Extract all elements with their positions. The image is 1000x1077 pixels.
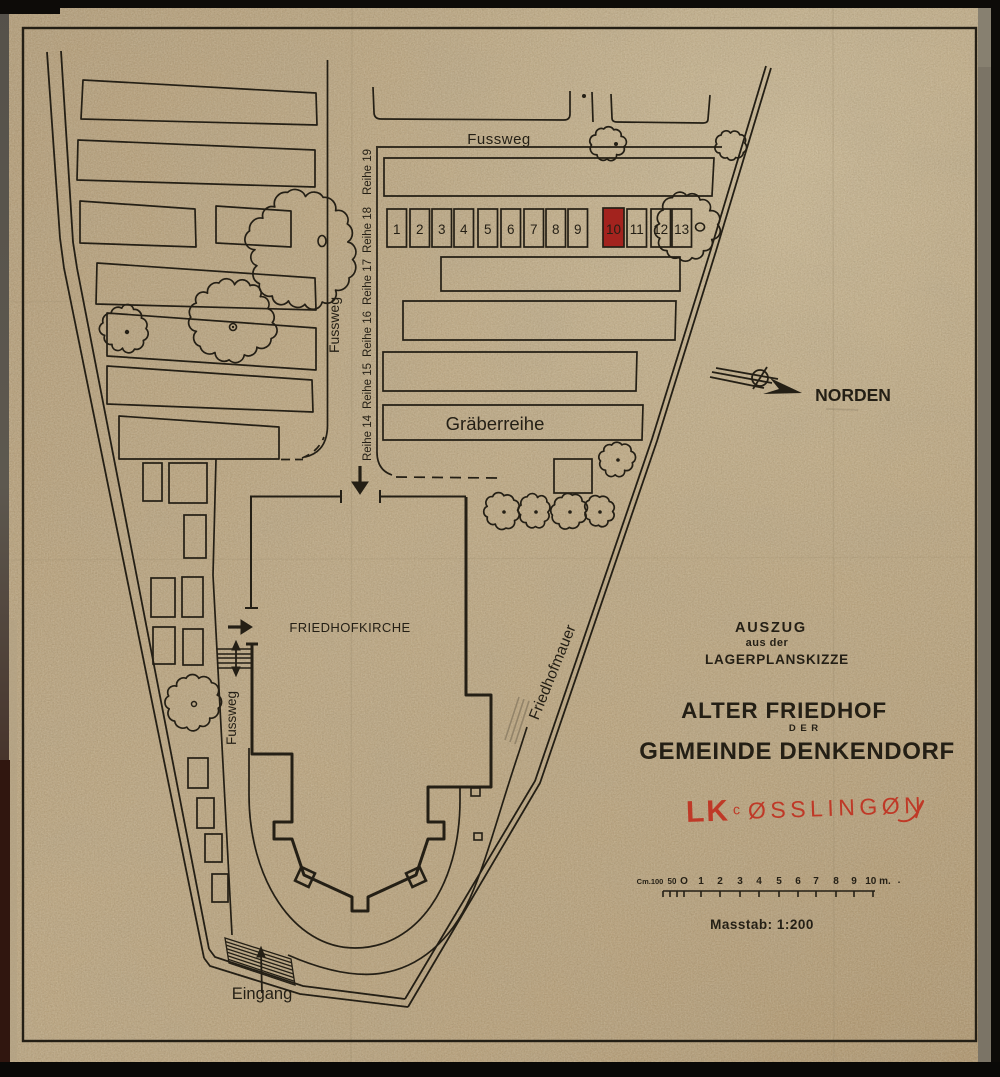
svg-text:D E R: D E R [789,723,819,734]
svg-text:3: 3 [737,876,743,887]
svg-text:50: 50 [668,877,677,886]
svg-text:5: 5 [776,876,782,887]
svg-text:NORDEN: NORDEN [815,385,891,405]
svg-text:LAGERPLANSKIZZE: LAGERPLANSKIZZE [705,652,849,667]
svg-text:Fussweg: Fussweg [467,131,531,148]
svg-text:AUSZUG: AUSZUG [735,620,807,636]
svg-text:10: 10 [606,222,621,237]
svg-text:FRIEDHOFKIRCHE: FRIEDHOFKIRCHE [289,620,410,635]
svg-text:Reihe 16: Reihe 16 [362,311,374,357]
svg-text:Fussweg: Fussweg [326,297,342,353]
svg-text:Masstab: 1:200: Masstab: 1:200 [710,917,814,932]
svg-text:2: 2 [416,222,424,237]
svg-text:Reihe 17: Reihe 17 [362,259,374,305]
svg-text:6: 6 [795,876,801,887]
svg-text:2: 2 [717,876,723,887]
svg-text:8: 8 [833,876,839,887]
svg-text:1: 1 [393,222,401,237]
svg-text:8: 8 [552,222,560,237]
svg-text:Reihe 14: Reihe 14 [362,414,374,461]
svg-text:5: 5 [484,222,492,237]
svg-text:Reihe 19: Reihe 19 [362,149,374,195]
svg-text:Reihe 18: Reihe 18 [362,207,374,253]
svg-text:4: 4 [460,222,468,237]
svg-text:ALTER FRIEDHOF: ALTER FRIEDHOF [681,698,887,723]
svg-text:c: c [733,801,741,817]
svg-text:10 m.: 10 m. [865,876,891,887]
svg-text:7: 7 [530,222,538,237]
svg-text:11: 11 [630,222,644,237]
svg-text:Eingang: Eingang [232,985,293,1003]
svg-text:GEMEINDE DENKENDORF: GEMEINDE DENKENDORF [639,738,954,765]
svg-text:9: 9 [574,222,582,237]
svg-text:.: . [898,875,901,886]
svg-text:O: O [680,876,688,887]
svg-text:Reihe 15: Reihe 15 [362,363,374,409]
svg-text:6: 6 [507,222,515,237]
svg-text:LK: LK [685,794,730,829]
svg-text:9: 9 [851,876,857,887]
svg-text:Fussweg: Fussweg [224,691,239,745]
svg-text:7: 7 [813,876,819,887]
svg-text:4: 4 [756,876,762,887]
svg-text:aus der: aus der [746,637,789,649]
svg-text:3: 3 [438,222,446,237]
svg-text:Cm.100: Cm.100 [637,877,664,886]
svg-text:1: 1 [698,876,704,887]
svg-text:Gräberreihe: Gräberreihe [446,413,545,434]
svg-text:13: 13 [674,222,689,237]
